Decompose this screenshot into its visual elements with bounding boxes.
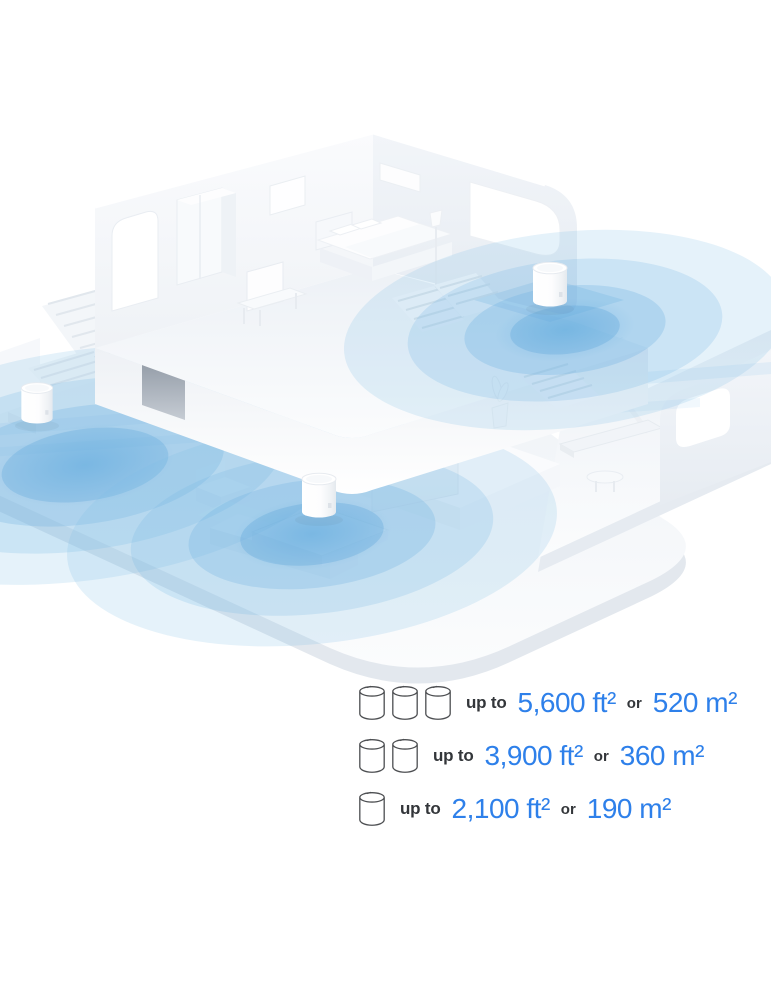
up-to-label: up to xyxy=(466,693,507,713)
deco-unit-icon xyxy=(423,683,453,723)
deco-unit-left xyxy=(15,383,59,432)
deco-unit-upper xyxy=(526,262,574,315)
unit-icon-group xyxy=(357,683,453,723)
up-to-label: up to xyxy=(400,799,441,819)
or-label: or xyxy=(627,695,642,712)
page: up to 5,600 ft² or 520 m² up to 3,900 ft… xyxy=(0,0,771,1000)
coverage-metric: 190 m² xyxy=(587,793,671,825)
deco-unit-center xyxy=(295,473,343,526)
house-illustration xyxy=(0,0,771,1000)
coverage-imperial: 3,900 ft² xyxy=(485,740,583,772)
coverage-metric: 360 m² xyxy=(620,740,704,772)
coverage-row-2-units: up to 3,900 ft² or 360 m² xyxy=(357,735,737,777)
deco-unit-icon xyxy=(357,789,387,829)
coverage-metric: 520 m² xyxy=(653,687,737,719)
deco-unit-icon xyxy=(390,683,420,723)
coverage-imperial: 5,600 ft² xyxy=(518,687,616,719)
arch-doorway xyxy=(112,211,158,311)
or-label: or xyxy=(561,801,576,818)
coverage-row-1-unit: up to 2,100 ft² or 190 m² xyxy=(357,788,737,830)
deco-unit-icon xyxy=(357,736,387,776)
deco-unit-icon xyxy=(390,736,420,776)
coverage-imperial: 2,100 ft² xyxy=(452,793,550,825)
coverage-legend: up to 5,600 ft² or 520 m² up to 3,900 ft… xyxy=(357,682,737,841)
unit-icon-group xyxy=(357,789,387,829)
up-to-label: up to xyxy=(433,746,474,766)
coverage-row-3-units: up to 5,600 ft² or 520 m² xyxy=(357,682,737,724)
unit-icon-group xyxy=(357,736,420,776)
or-label: or xyxy=(594,748,609,765)
deco-unit-icon xyxy=(357,683,387,723)
wardrobe xyxy=(177,188,236,285)
